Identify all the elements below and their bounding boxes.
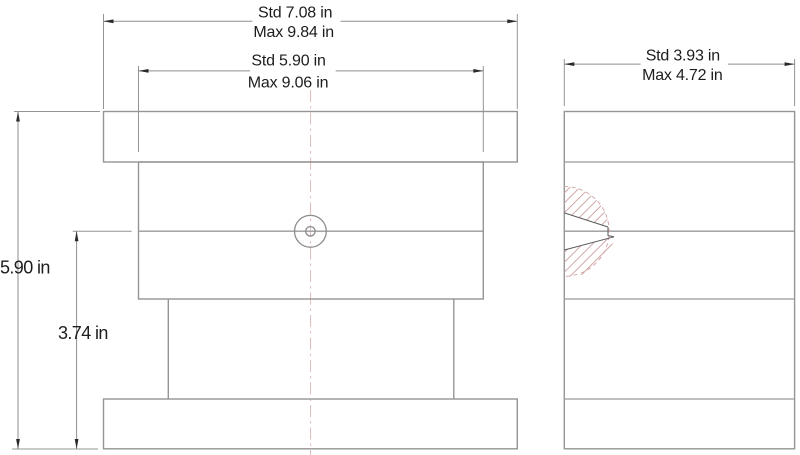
svg-text:3.74 in: 3.74 in bbox=[58, 323, 108, 343]
svg-text:5.90 in: 5.90 in bbox=[0, 258, 50, 278]
svg-text:Std 3.93 in: Std 3.93 in bbox=[646, 48, 720, 65]
svg-text:Max 4.72 in: Max 4.72 in bbox=[642, 67, 723, 84]
svg-text:Std 5.90 in: Std 5.90 in bbox=[251, 53, 325, 70]
svg-text:Std 7.08 in: Std 7.08 in bbox=[258, 4, 332, 21]
svg-text:Max 9.06 in: Max 9.06 in bbox=[248, 75, 329, 92]
svg-text:Max 9.84 in: Max 9.84 in bbox=[253, 24, 334, 41]
